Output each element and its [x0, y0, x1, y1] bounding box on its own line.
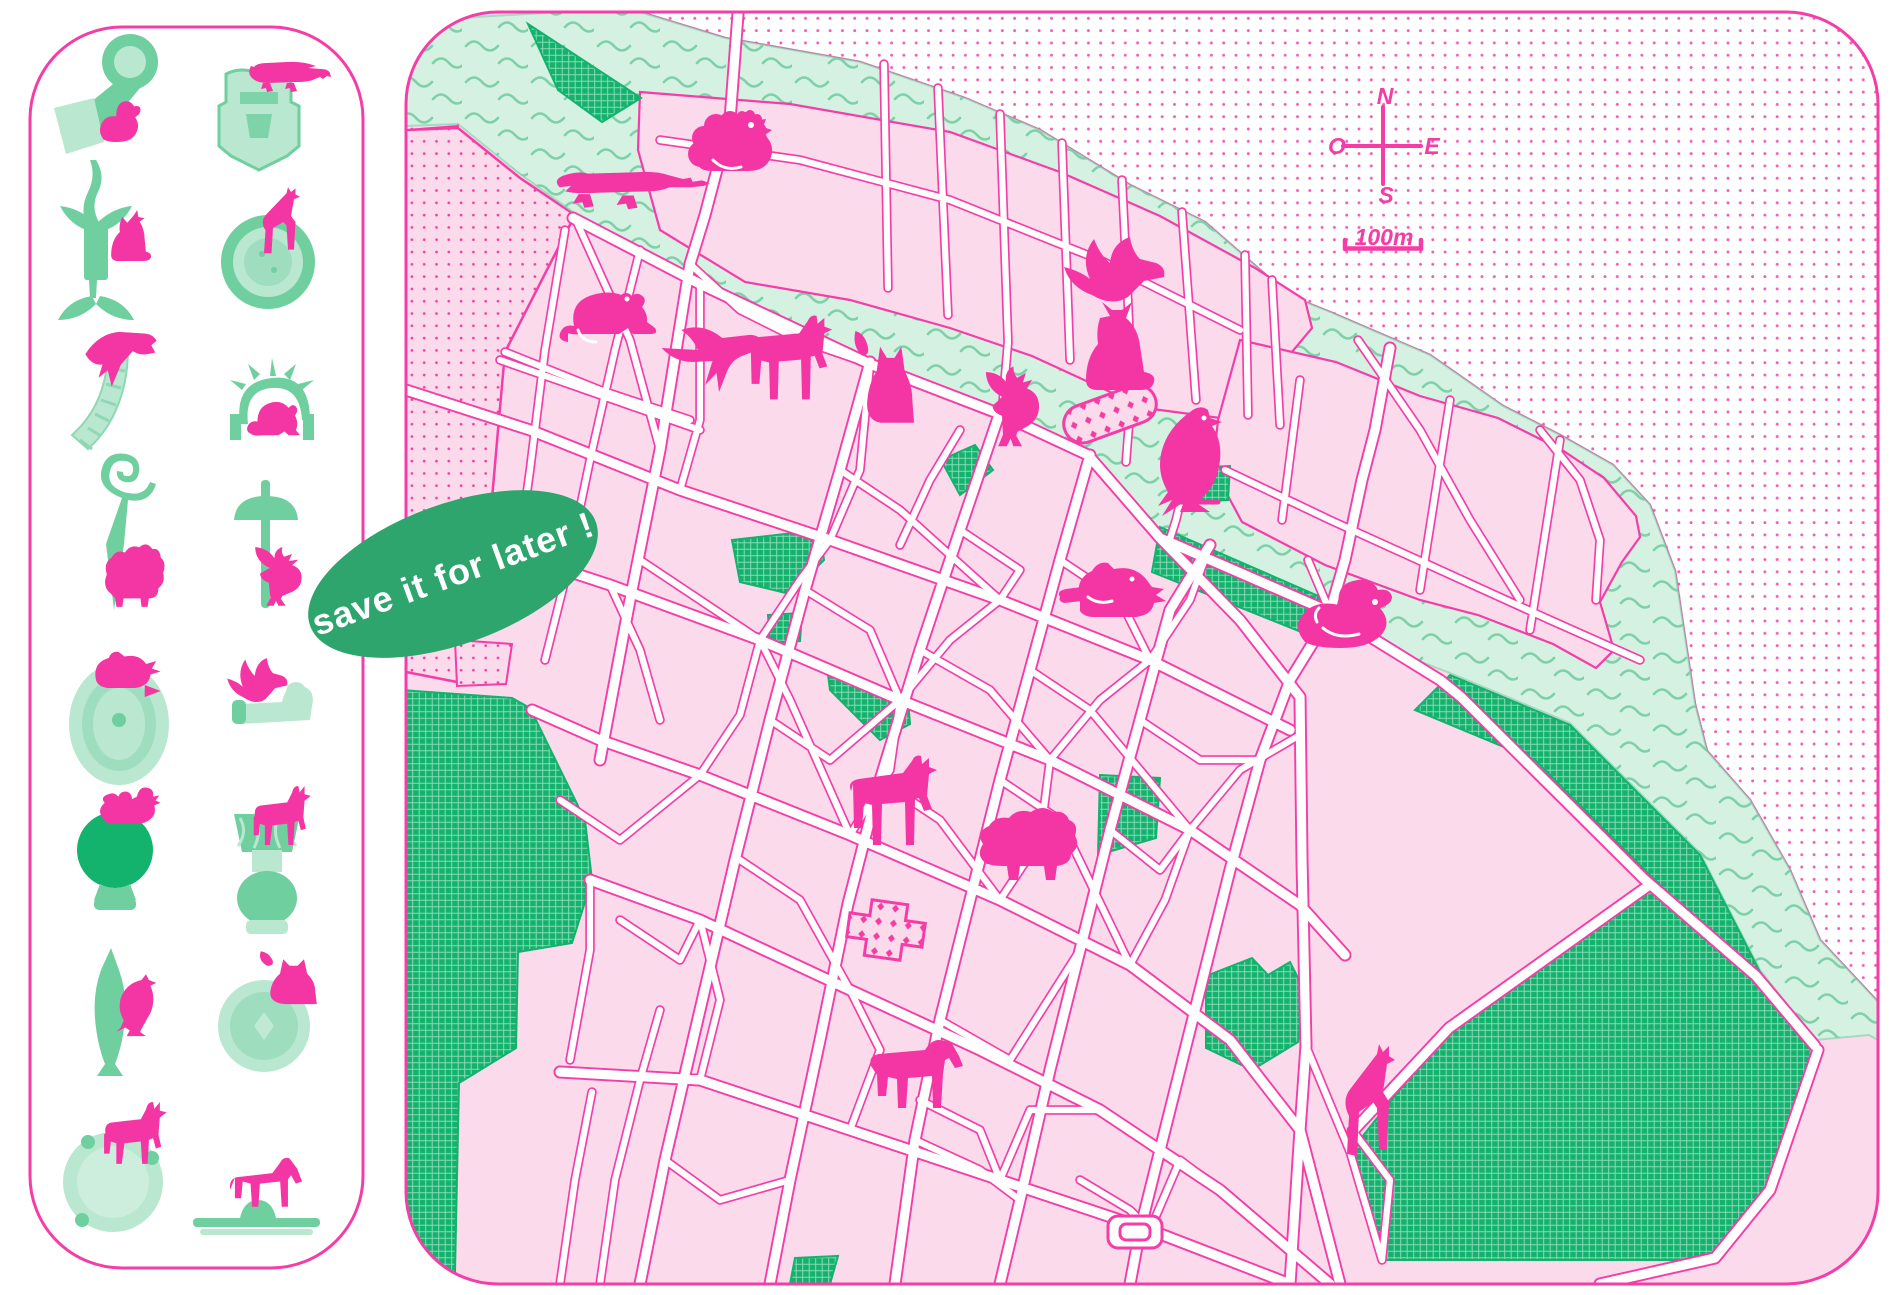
svg-text:N: N [1377, 83, 1394, 109]
svg-text:100m: 100m [1355, 224, 1414, 250]
svg-text:E: E [1424, 133, 1440, 159]
svg-text:O: O [1328, 133, 1346, 159]
svg-text:S: S [1378, 182, 1394, 208]
